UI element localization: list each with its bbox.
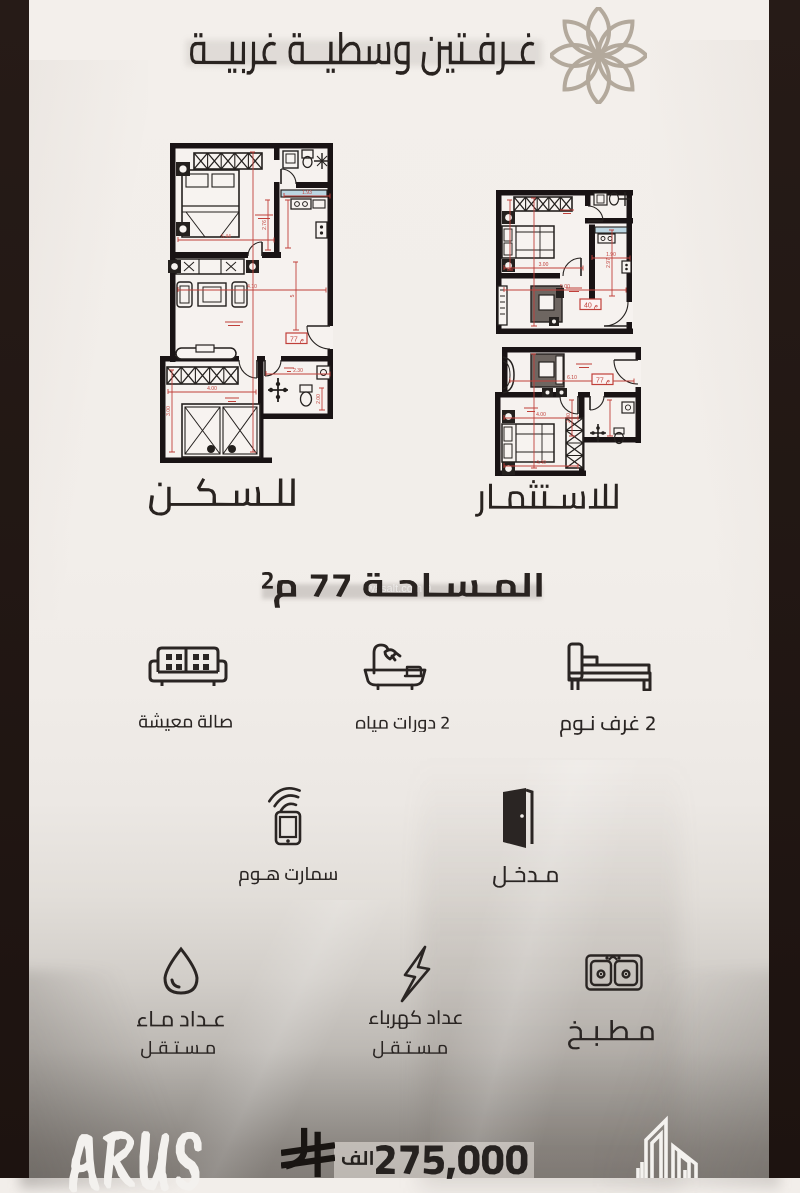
- svg-text:5.44: 5.44: [221, 234, 231, 240]
- svg-text:5: 5: [290, 294, 296, 297]
- svg-text:4.00: 4.00: [536, 412, 546, 418]
- svg-text:4.00: 4.00: [207, 386, 217, 392]
- svg-text:2.97: 2.97: [606, 258, 612, 268]
- svg-text:2.00: 2.00: [316, 394, 322, 404]
- svg-text:3.00: 3.00: [166, 406, 172, 416]
- svg-text:2.00: 2.00: [566, 413, 572, 423]
- svg-text:4.10: 4.10: [247, 284, 257, 290]
- svg-text:77 م: 77 م: [596, 378, 610, 385]
- svg-text:1.90: 1.90: [606, 252, 616, 258]
- svg-text:3.00: 3.00: [539, 262, 549, 268]
- svg-text:77 م: 77 م: [290, 337, 304, 344]
- svg-text:5.00: 5.00: [560, 284, 570, 290]
- svg-text:4.40: 4.40: [536, 460, 546, 466]
- svg-text:2.76: 2.76: [262, 220, 268, 230]
- svg-text:6.10: 6.10: [567, 375, 577, 381]
- svg-text:1.93: 1.93: [302, 190, 312, 196]
- svg-text:2.30: 2.30: [293, 368, 303, 374]
- svg-text:40 م: 40 م: [584, 303, 598, 310]
